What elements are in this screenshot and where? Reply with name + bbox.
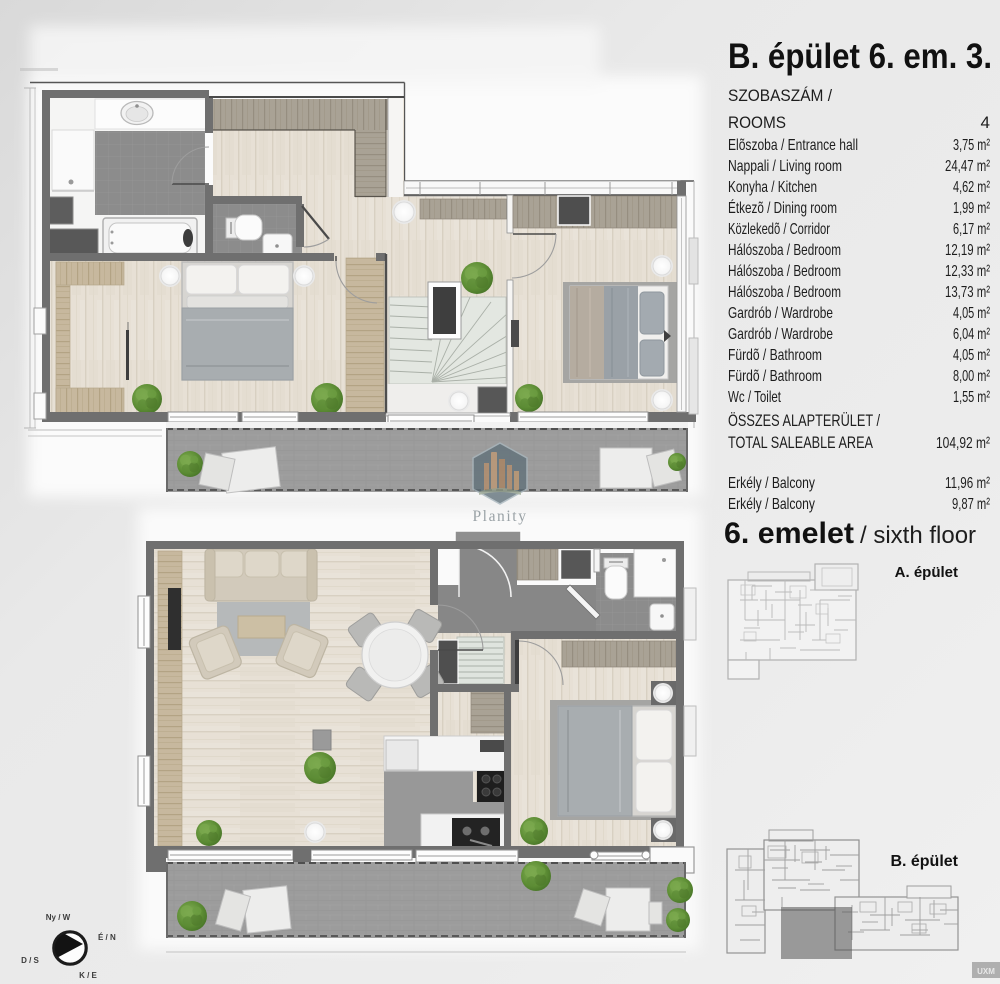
svg-text:A. épület: A. épület (895, 564, 958, 581)
svg-text:4: 4 (981, 113, 990, 132)
svg-text:Nappali / Living room: Nappali / Living room (728, 158, 842, 175)
svg-text:24,47 m²: 24,47 m² (945, 158, 990, 175)
svg-text:Fürdõ / Bathroom: Fürdõ / Bathroom (728, 347, 822, 364)
svg-text:Étkezõ / Dining room: Étkezõ / Dining room (728, 198, 837, 217)
svg-text:6,04 m²: 6,04 m² (953, 326, 990, 343)
svg-text:Hálószoba / Bedroom: Hálószoba / Bedroom (728, 284, 841, 301)
svg-text:Közlekedõ / Corridor: Közlekedõ / Corridor (728, 221, 830, 238)
svg-text:11,96 m²: 11,96 m² (945, 475, 990, 492)
svg-text:4,05 m²: 4,05 m² (953, 305, 990, 322)
svg-text:Fürdõ / Bathroom: Fürdõ / Bathroom (728, 368, 822, 385)
svg-text:B. épület 6. em. 3.: B. épület 6. em. 3. (728, 37, 992, 76)
svg-text:TOTAL SALEABLE AREA: TOTAL SALEABLE AREA (728, 434, 873, 452)
svg-text:13,73 m²: 13,73 m² (945, 284, 990, 301)
svg-text:/ sixth floor: / sixth floor (860, 522, 976, 549)
svg-text:12,19 m²: 12,19 m² (945, 242, 990, 259)
svg-text:UXM: UXM (977, 967, 995, 976)
svg-text:6. emelet: 6. emelet (724, 517, 854, 550)
svg-text:ÖSSZES ALAPTERÜLET /: ÖSSZES ALAPTERÜLET / (728, 412, 880, 430)
svg-text:Planity: Planity (472, 508, 527, 525)
svg-text:Wc / Toilet: Wc / Toilet (728, 389, 781, 406)
svg-text:K / E: K / E (79, 971, 97, 980)
svg-text:SZOBASZÁM /: SZOBASZÁM / (728, 86, 832, 105)
svg-text:Erkély / Balcony: Erkély / Balcony (728, 475, 815, 492)
svg-text:4,62 m²: 4,62 m² (953, 179, 990, 196)
svg-text:3,75 m²: 3,75 m² (953, 137, 990, 154)
svg-text:Gardrób / Wardrobe: Gardrób / Wardrobe (728, 326, 833, 343)
svg-text:ROOMS: ROOMS (728, 113, 786, 132)
svg-text:D / S: D / S (21, 956, 39, 965)
svg-text:B. épület: B. épület (890, 853, 958, 870)
svg-text:Konyha / Kitchen: Konyha / Kitchen (728, 179, 817, 196)
svg-text:1,55 m²: 1,55 m² (953, 389, 990, 406)
svg-text:4,05 m²: 4,05 m² (953, 347, 990, 364)
svg-text:104,92 m²: 104,92 m² (936, 435, 990, 452)
svg-text:8,00 m²: 8,00 m² (953, 368, 990, 385)
svg-text:9,87 m²: 9,87 m² (952, 496, 990, 513)
svg-text:1,99 m²: 1,99 m² (953, 200, 990, 217)
svg-text:Hálószoba / Bedroom: Hálószoba / Bedroom (728, 242, 841, 259)
svg-text:Gardrób / Wardrobe: Gardrób / Wardrobe (728, 305, 833, 322)
svg-text:Elõszoba / Entrance hall: Elõszoba / Entrance hall (728, 137, 858, 154)
svg-text:É / N: É / N (98, 933, 116, 942)
svg-text:Hálószoba / Bedroom: Hálószoba / Bedroom (728, 263, 841, 280)
svg-text:Erkély / Balcony: Erkély / Balcony (728, 496, 815, 513)
svg-text:12,33 m²: 12,33 m² (945, 263, 990, 280)
svg-text:Ny / W: Ny / W (46, 913, 71, 922)
svg-text:6,17 m²: 6,17 m² (953, 221, 990, 238)
